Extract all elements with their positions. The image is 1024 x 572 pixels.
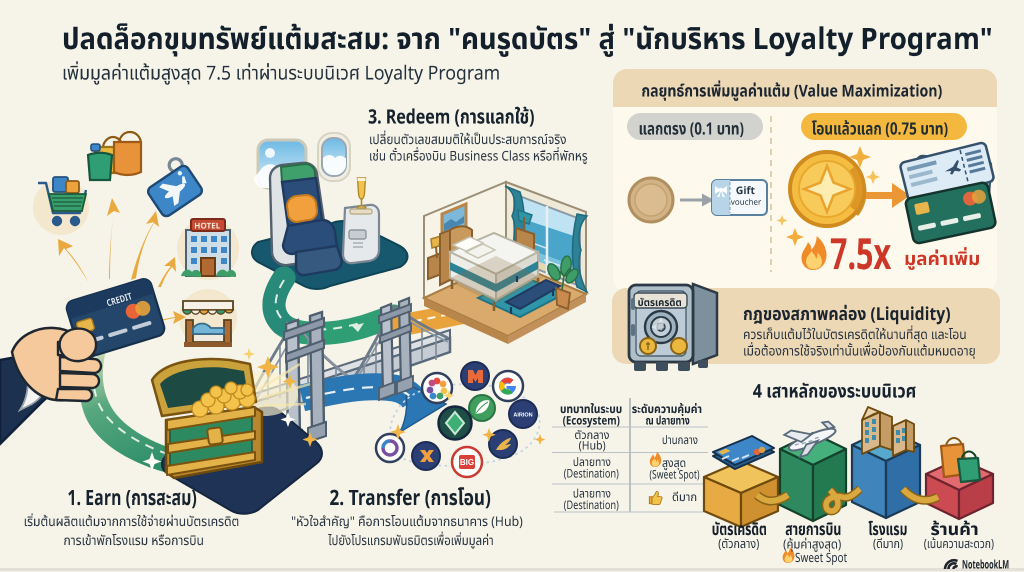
svg-text:AIRION: AIRION xyxy=(513,413,532,419)
svg-text:BIG: BIG xyxy=(460,458,474,467)
